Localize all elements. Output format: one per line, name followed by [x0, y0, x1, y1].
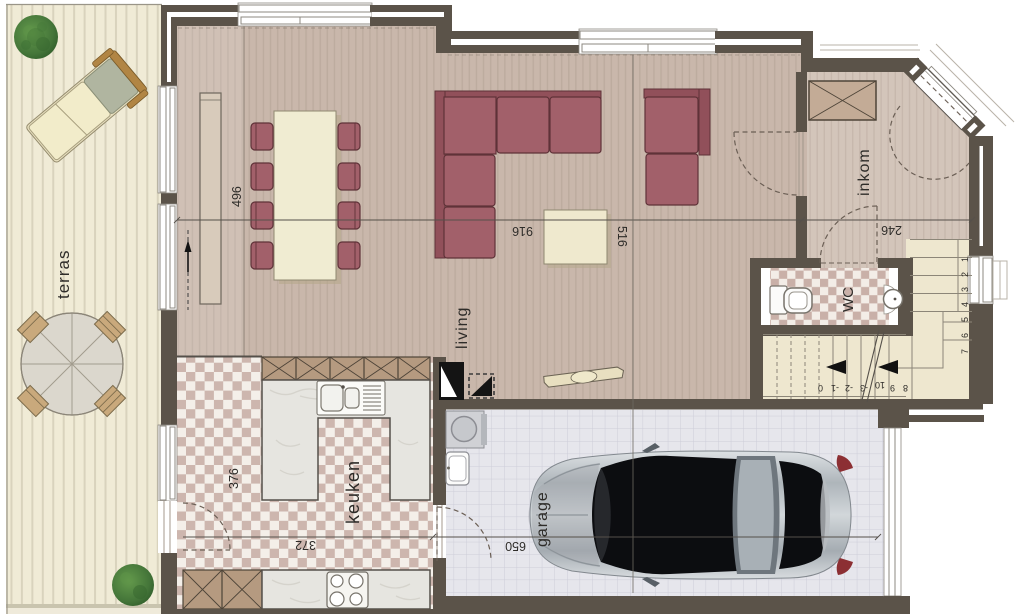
svg-text:-1: -1: [831, 383, 839, 393]
svg-text:5: 5: [960, 317, 970, 322]
svg-text:916: 916: [512, 224, 533, 238]
svg-text:496: 496: [230, 186, 244, 207]
svg-text:2: 2: [960, 272, 970, 277]
svg-text:keuken: keuken: [343, 460, 363, 524]
svg-text:-3: -3: [860, 383, 868, 393]
svg-text:WC: WC: [840, 287, 857, 312]
svg-text:0: 0: [818, 383, 823, 393]
svg-text:246: 246: [881, 223, 902, 237]
svg-text:7: 7: [960, 349, 970, 354]
svg-text:10: 10: [875, 380, 885, 390]
svg-text:inkom: inkom: [856, 148, 873, 196]
svg-text:8: 8: [903, 383, 908, 393]
svg-text:650: 650: [505, 539, 526, 553]
svg-text:1: 1: [960, 257, 970, 262]
svg-text:376: 376: [227, 468, 241, 489]
svg-text:living: living: [454, 307, 471, 349]
svg-text:3: 3: [960, 287, 970, 292]
svg-text:terras: terras: [54, 250, 73, 299]
svg-text:9: 9: [890, 383, 895, 393]
svg-text:garage: garage: [534, 491, 551, 547]
svg-text:516: 516: [615, 226, 629, 247]
svg-text:-2: -2: [845, 383, 853, 393]
svg-text:6: 6: [960, 333, 970, 338]
svg-text:4: 4: [960, 302, 970, 307]
svg-text:372: 372: [295, 538, 316, 552]
